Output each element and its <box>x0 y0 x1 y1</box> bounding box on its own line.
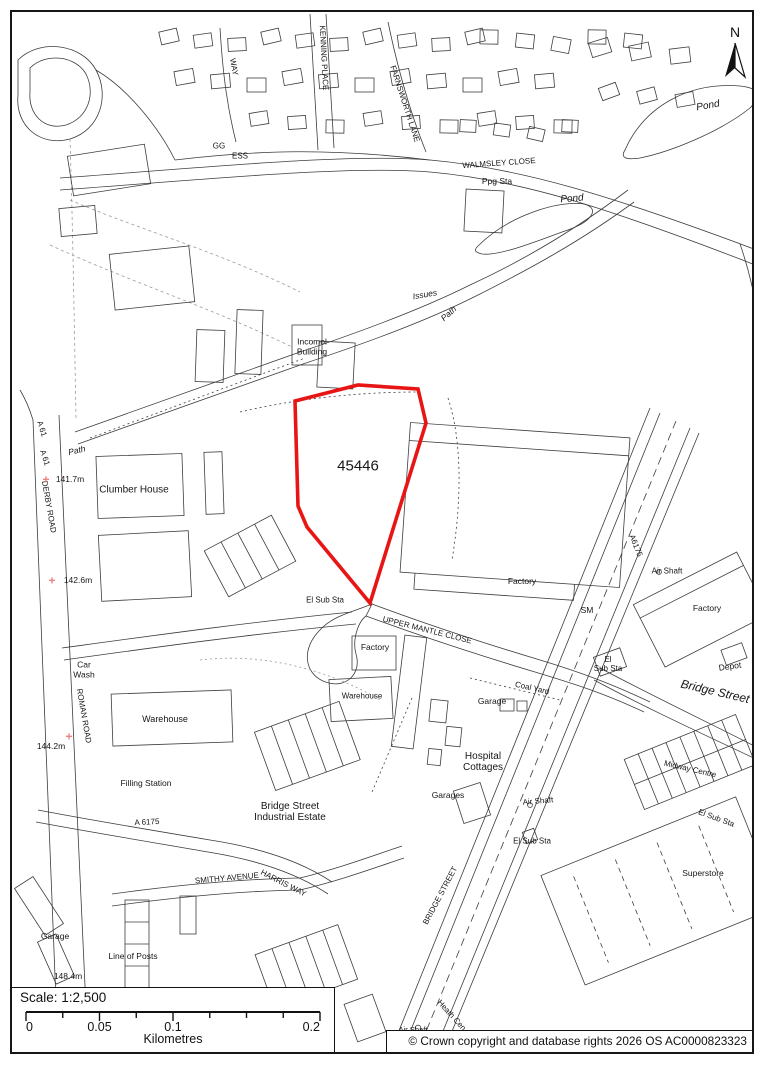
os-map-page: { "map": { "site_reference": "45446", "b… <box>0 0 764 1080</box>
scale-tick-label: 0.05 <box>87 1020 111 1032</box>
map-frame: WAYKENNING PLACEFARNSWORTH LANEGGESSPond… <box>10 10 754 1054</box>
scale-bar: 00.050.10.2 <box>12 988 334 1032</box>
site-boundary <box>295 385 426 603</box>
copyright-notice: © Crown copyright and database rights 20… <box>386 1030 752 1052</box>
scale-tick-label: 0.1 <box>164 1020 181 1032</box>
north-label: N <box>715 24 755 40</box>
scale-tick-label: 0.2 <box>303 1020 320 1032</box>
scale-unit-label: Kilometres <box>12 1032 334 1046</box>
scale-tick-label: 0 <box>26 1020 33 1032</box>
north-arrow: N <box>715 24 755 90</box>
map-linework <box>10 10 754 1054</box>
scale-box: Scale: 1:2,500 00.050.10.2 Kilometres <box>12 987 335 1052</box>
north-arrow-icon <box>719 41 751 81</box>
